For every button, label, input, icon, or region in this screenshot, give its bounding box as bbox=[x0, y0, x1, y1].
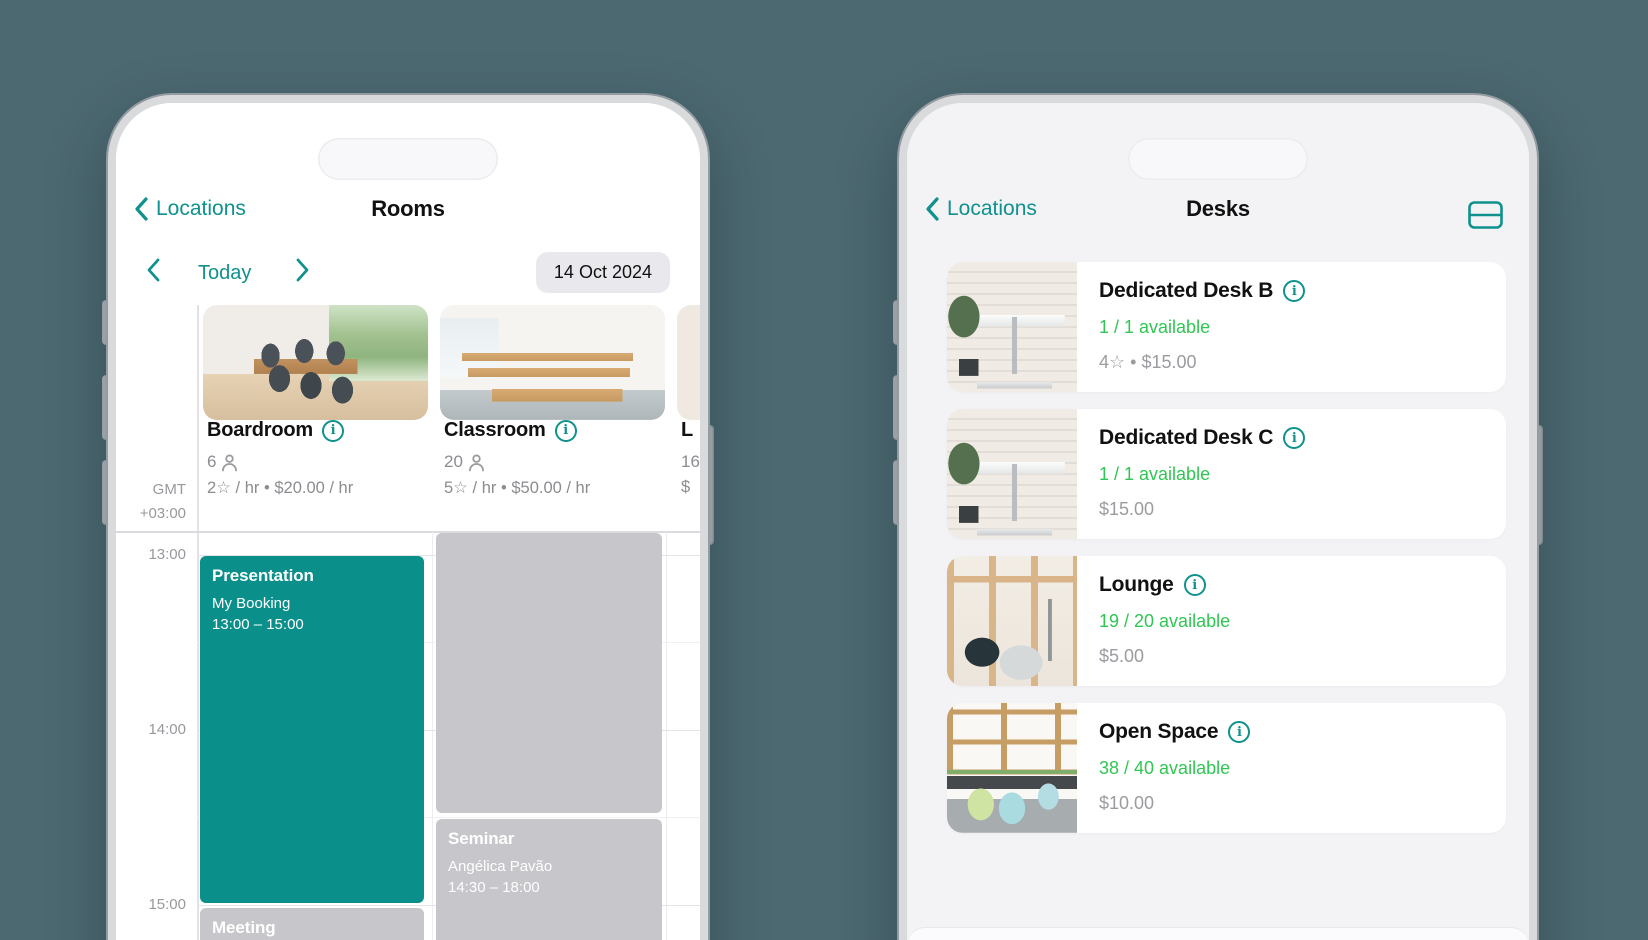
desk-availability: 1 / 1 available bbox=[1099, 464, 1210, 485]
room-name-row: Boardroom i bbox=[207, 419, 344, 442]
room-photo-classroom[interactable] bbox=[440, 305, 665, 420]
time-label: 15:00 bbox=[116, 896, 186, 914]
desk-availability: 38 / 40 available bbox=[1099, 758, 1230, 779]
next-day-button[interactable] bbox=[296, 257, 310, 286]
person-icon bbox=[220, 453, 239, 472]
room-rate: 2☆ / hr • $20.00 / hr bbox=[207, 478, 353, 498]
page-title: Rooms bbox=[116, 193, 700, 225]
date-navigation: Today 14 Oct 2024 bbox=[116, 252, 700, 294]
info-icon[interactable]: i bbox=[1283, 280, 1305, 302]
event-seminar[interactable]: Seminar Angélica Pavão 14:30 – 18:00 bbox=[436, 819, 662, 940]
chevron-left-icon bbox=[146, 257, 160, 283]
dynamic-island bbox=[318, 138, 498, 180]
column-divider bbox=[432, 532, 433, 940]
event-title: Presentation bbox=[212, 566, 412, 586]
capacity-value: 20 bbox=[444, 452, 463, 472]
info-icon[interactable]: i bbox=[322, 420, 344, 442]
info-icon[interactable]: i bbox=[1184, 574, 1206, 596]
desk-card[interactable]: Lounge i 19 / 20 available $5.00 bbox=[947, 556, 1506, 686]
room-name: Boardroom bbox=[207, 419, 313, 442]
desk-name: Dedicated Desk C bbox=[1099, 426, 1273, 450]
desk-price: $15.00 bbox=[1099, 499, 1154, 520]
desk-availability: 19 / 20 available bbox=[1099, 611, 1230, 632]
time-gutter-divider bbox=[197, 305, 199, 940]
canvas: Locations Rooms Today 14 Oct 2024 bbox=[0, 0, 1648, 940]
desk-photo bbox=[947, 703, 1077, 833]
card-view-icon bbox=[1468, 201, 1503, 229]
right-phone: Locations Desks Dedicated Desk B i 1 / 1… bbox=[899, 95, 1537, 940]
desks-header: Locations Desks bbox=[907, 193, 1529, 225]
room-name-row: Classroom i bbox=[444, 419, 577, 442]
desk-photo bbox=[947, 409, 1077, 539]
timezone-offset: +03:00 bbox=[116, 505, 186, 522]
event-meeting[interactable]: Meeting bbox=[200, 908, 424, 940]
room-capacity: 16 bbox=[681, 452, 700, 472]
room-photo-partial[interactable] bbox=[677, 305, 700, 420]
event-subtitle: My Booking bbox=[212, 593, 412, 614]
info-icon[interactable]: i bbox=[1228, 721, 1250, 743]
view-toggle-button[interactable] bbox=[1468, 201, 1503, 232]
desk-name-row: Lounge i bbox=[1099, 573, 1206, 597]
bottom-sheet bbox=[907, 928, 1529, 940]
room-name: L bbox=[681, 419, 693, 442]
room-rate: $ bbox=[681, 478, 690, 497]
rooms-screen: Locations Rooms Today 14 Oct 2024 bbox=[116, 103, 700, 940]
left-phone: Locations Rooms Today 14 Oct 2024 bbox=[108, 95, 708, 940]
event-presentation[interactable]: Presentation My Booking 13:00 – 15:00 bbox=[200, 556, 424, 903]
chevron-right-icon bbox=[296, 257, 310, 283]
room-capacity: 6 bbox=[207, 452, 239, 472]
column-divider bbox=[666, 532, 667, 940]
time-label: 14:00 bbox=[116, 721, 186, 739]
capacity-value: 6 bbox=[207, 452, 216, 472]
desk-photo bbox=[947, 556, 1077, 686]
rooms-header: Locations Rooms bbox=[116, 193, 700, 225]
desk-name: Dedicated Desk B bbox=[1099, 279, 1273, 303]
today-button[interactable]: Today bbox=[198, 252, 251, 294]
info-icon[interactable]: i bbox=[1283, 427, 1305, 449]
desk-availability: 1 / 1 available bbox=[1099, 317, 1210, 338]
timezone-label: GMT bbox=[116, 481, 186, 498]
desk-photo bbox=[947, 262, 1077, 392]
event-title: Seminar bbox=[448, 829, 650, 849]
page-title: Desks bbox=[907, 193, 1529, 225]
info-icon[interactable]: i bbox=[555, 420, 577, 442]
event-time: 14:30 – 18:00 bbox=[448, 877, 650, 898]
desk-name: Open Space bbox=[1099, 720, 1218, 744]
capacity-value: 16 bbox=[681, 452, 700, 472]
person-icon bbox=[467, 453, 486, 472]
desk-price: $5.00 bbox=[1099, 646, 1144, 667]
time-label: 13:00 bbox=[116, 546, 186, 564]
room-name: Classroom bbox=[444, 419, 546, 442]
event-subtitle: Angélica Pavão bbox=[448, 856, 650, 877]
room-name-row: L bbox=[681, 419, 693, 442]
desk-price: 4☆ • $15.00 bbox=[1099, 352, 1197, 373]
desk-card[interactable]: Dedicated Desk B i 1 / 1 available 4☆ • … bbox=[947, 262, 1506, 392]
desk-name-row: Dedicated Desk B i bbox=[1099, 279, 1305, 303]
event-title: Meeting bbox=[212, 918, 412, 938]
event-time: 13:00 – 15:00 bbox=[212, 614, 412, 635]
previous-day-button[interactable] bbox=[146, 257, 160, 286]
desk-name-row: Dedicated Desk C i bbox=[1099, 426, 1305, 450]
room-rate: 5☆ / hr • $50.00 / hr bbox=[444, 478, 590, 498]
desks-screen: Locations Desks Dedicated Desk B i 1 / 1… bbox=[907, 103, 1529, 940]
room-capacity: 20 bbox=[444, 452, 486, 472]
date-chip[interactable]: 14 Oct 2024 bbox=[536, 252, 670, 293]
desk-price: $10.00 bbox=[1099, 793, 1154, 814]
event-busy-block[interactable] bbox=[436, 533, 662, 813]
desk-card[interactable]: Open Space i 38 / 40 available $10.00 bbox=[947, 703, 1506, 833]
room-photo-boardroom[interactable] bbox=[203, 305, 428, 420]
desk-name-row: Open Space i bbox=[1099, 720, 1250, 744]
desk-name: Lounge bbox=[1099, 573, 1174, 597]
desk-card[interactable]: Dedicated Desk C i 1 / 1 available $15.0… bbox=[947, 409, 1506, 539]
dynamic-island bbox=[1128, 138, 1308, 180]
